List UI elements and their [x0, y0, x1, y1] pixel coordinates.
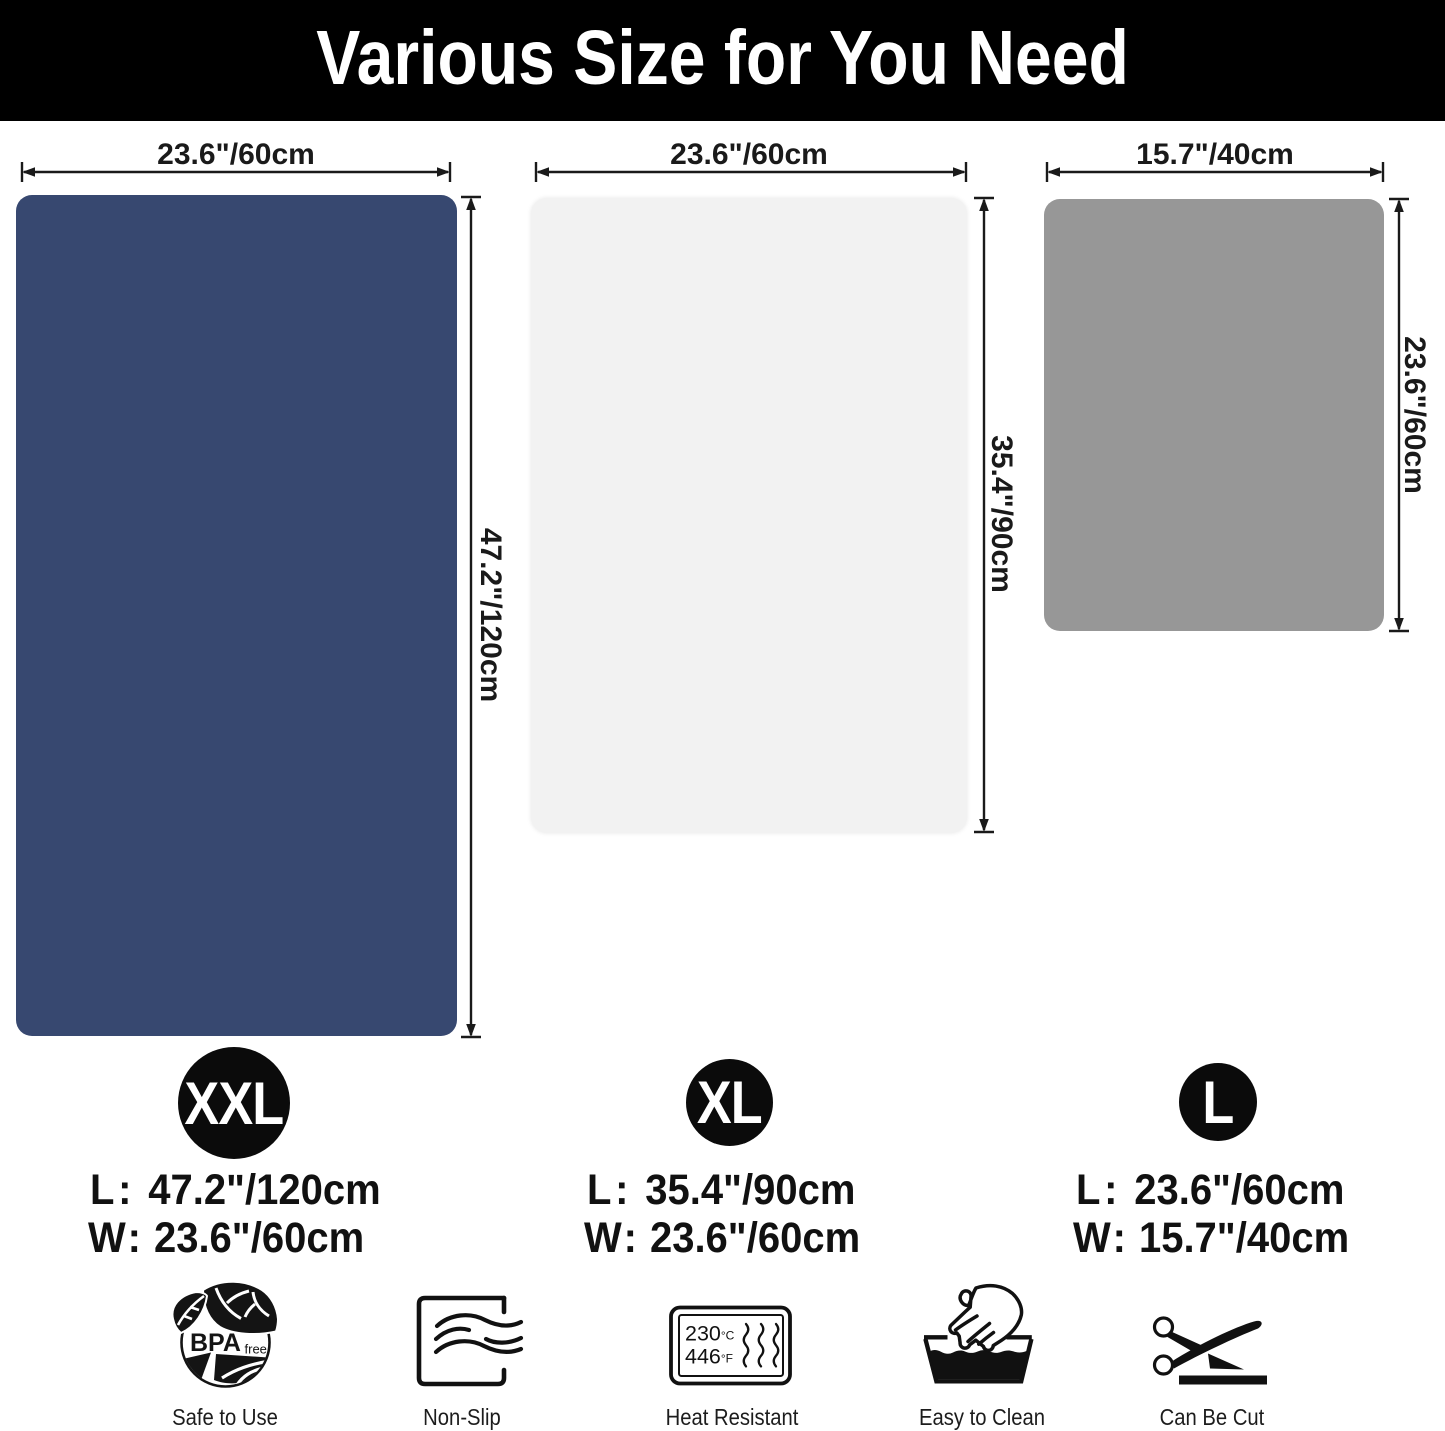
- svg-text:446°F: 446°F: [685, 1345, 733, 1369]
- svg-text:230°C: 230°C: [685, 1322, 735, 1346]
- svg-text:BPA: BPA: [190, 1329, 241, 1357]
- svg-text:free: free: [245, 1342, 267, 1357]
